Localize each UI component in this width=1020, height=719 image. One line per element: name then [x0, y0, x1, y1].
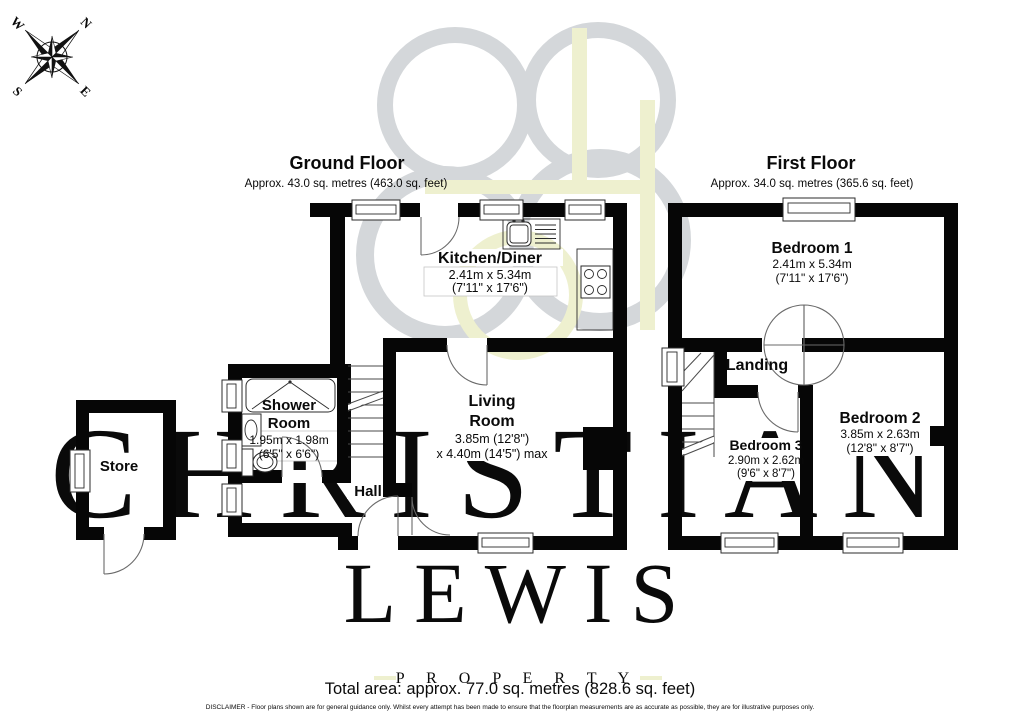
wall [383, 352, 396, 497]
kitchen-dim-m: 2.41m x 5.34m [449, 268, 532, 282]
ground-floor-title: Ground Floor [290, 153, 405, 173]
bedroom2-label: Bedroom 2 [840, 410, 921, 427]
wall [228, 364, 351, 378]
wall [944, 203, 958, 550]
wall [337, 364, 351, 483]
wall [338, 523, 352, 550]
kitchen-dim-ft: (7'11" x 17'6") [452, 281, 528, 295]
wall [396, 483, 412, 497]
living-dim-m: 3.85m (12'8") [455, 432, 529, 446]
chimney-breast [583, 427, 613, 470]
window [478, 533, 533, 553]
store-label: Store [100, 458, 138, 475]
disclaimer: DISCLAIMER - Floor plans shown are for g… [206, 704, 815, 711]
chimney-breast [930, 426, 944, 446]
floorplan-canvas: CHRISTIAN LEWIS P R O P E R T Y [0, 0, 1020, 719]
window [783, 198, 855, 221]
wall [383, 338, 613, 352]
first-floor-title: First Floor [767, 153, 856, 173]
window [222, 484, 242, 516]
bedroom2-dim-ft: (12'8" x 8'7") [846, 441, 913, 455]
shower-label-1: Shower [262, 397, 316, 414]
shower-dim-ft: (6'5" x 6'6") [259, 447, 319, 461]
wall [613, 203, 627, 550]
kitchen-label: Kitchen/Diner [438, 250, 542, 267]
compass-n: N [78, 14, 96, 32]
bedroom1-dim-ft: (7'11" x 17'6") [776, 271, 849, 285]
bedroom1-dim-m: 2.41m x 5.34m [772, 257, 851, 271]
window [70, 450, 90, 492]
bedroom1-label: Bedroom 1 [772, 240, 853, 257]
bedroom3-dim-m: 2.90m x 2.62m [728, 455, 804, 467]
living-dim-ft: x 4.40m (14'5") max [436, 447, 548, 461]
compass-e: E [77, 83, 94, 100]
watermark-line2: LEWIS [344, 545, 697, 641]
window [480, 200, 523, 220]
window [222, 440, 242, 472]
bedroom3-label: Bedroom 3 [729, 437, 802, 453]
living-label-1: Living [468, 393, 515, 410]
floorplan-svg: CHRISTIAN LEWIS P R O P E R T Y [0, 0, 1020, 719]
bedroom2-dim-m: 3.85m x 2.63m [840, 427, 919, 441]
window [565, 200, 605, 220]
watermark-logo [365, 28, 682, 353]
wall [228, 523, 352, 537]
compass-s: S [10, 83, 26, 99]
window [843, 533, 903, 553]
ground-floor-subtitle: Approx. 43.0 sq. metres (463.0 sq. feet) [245, 178, 448, 190]
window [721, 533, 778, 553]
window [662, 348, 684, 386]
total-area: Total area: approx. 77.0 sq. metres (828… [325, 680, 696, 698]
shower-label-2: Room [268, 415, 311, 432]
window [352, 200, 400, 220]
stove-icon [581, 266, 610, 298]
window [222, 380, 242, 412]
living-label-2: Room [469, 413, 514, 430]
landing-label: Landing [726, 357, 788, 374]
bedroom3-dim-ft: (9'6" x 8'7") [737, 468, 795, 480]
compass-w: W [8, 14, 28, 34]
compass-rose: N E S W [0, 0, 129, 134]
hall-label: Hall [354, 483, 382, 500]
wall [668, 536, 958, 550]
wall [330, 203, 345, 378]
first-floor-subtitle: Approx. 34.0 sq. metres (365.6 sq. feet) [711, 178, 914, 190]
shower-dim-m: 1.95m x 1.98m [249, 433, 328, 447]
